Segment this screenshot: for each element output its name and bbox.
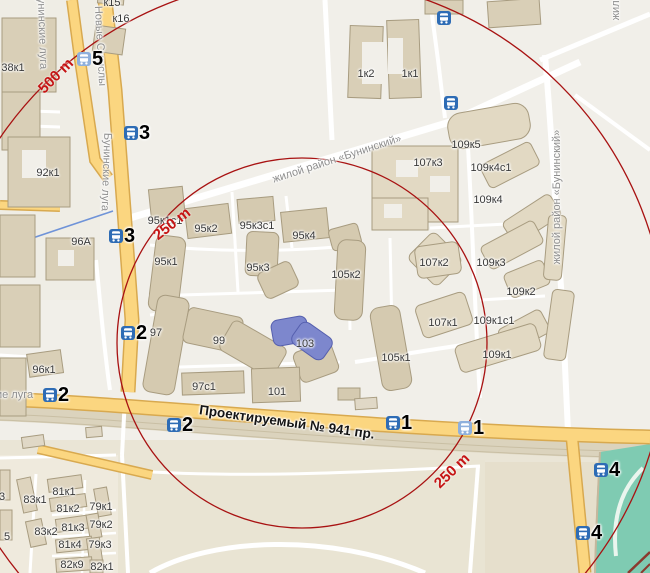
building-label: 103 xyxy=(296,338,314,350)
building[interactable] xyxy=(21,435,44,449)
bus-stop[interactable]: 5 xyxy=(77,52,103,66)
building[interactable] xyxy=(86,426,103,437)
bus-icon[interactable] xyxy=(386,416,400,430)
building-label: 109к2 xyxy=(506,286,535,298)
building-label: 107к2 xyxy=(419,257,448,269)
building-label: 79к3 xyxy=(88,539,111,551)
building-label: 81к4 xyxy=(58,539,81,551)
bus-stop[interactable]: 4 xyxy=(594,463,620,477)
bus-stop-number: 4 xyxy=(591,526,602,540)
bus-stop-number: 2 xyxy=(136,326,147,340)
street-label: Бунинские луга xyxy=(35,0,50,69)
bus-stop[interactable] xyxy=(444,96,459,110)
bus-stop[interactable]: 3 xyxy=(124,126,150,140)
bus-icon[interactable] xyxy=(576,526,590,540)
bus-icon[interactable] xyxy=(437,11,451,25)
bus-stop-number: 2 xyxy=(182,418,193,432)
building-label: 95к3 xyxy=(246,262,269,274)
bus-stop-number: 4 xyxy=(609,463,620,477)
building-label: 81к2 xyxy=(56,503,79,515)
bus-icon[interactable] xyxy=(124,126,138,140)
building-label: 81к3 xyxy=(61,522,84,534)
bus-icon[interactable] xyxy=(77,52,91,66)
building-label: 96А xyxy=(71,236,91,248)
bus-stop-number: 3 xyxy=(139,126,150,140)
bus-stop-number: 1 xyxy=(401,416,412,430)
building-label: 82к1 xyxy=(90,561,113,573)
bus-icon[interactable] xyxy=(594,463,608,477)
building-label: 79к1 xyxy=(89,501,112,513)
building-label: 109к4с1 xyxy=(471,162,512,174)
street-label: Бунинские луга xyxy=(0,389,33,401)
bus-stop[interactable]: 2 xyxy=(121,326,147,340)
bus-icon[interactable] xyxy=(43,388,57,402)
building-label: к15 xyxy=(103,0,120,9)
building-label: 97 xyxy=(150,327,162,339)
building-label: 95к1 xyxy=(154,256,177,268)
bus-stop-number: 5 xyxy=(92,52,103,66)
building-label: 83к1 xyxy=(23,494,46,506)
bus-stop-number: 3 xyxy=(124,229,135,243)
bus-stop[interactable]: 1 xyxy=(458,421,484,435)
building-label: 97с1 xyxy=(192,381,216,393)
bus-stop-number: 2 xyxy=(58,388,69,402)
map-canvas[interactable]: к15к161к21к138к192к196А96к195к1с195к295к… xyxy=(0,0,650,573)
building-label: 96к1 xyxy=(32,364,55,376)
building-label: 105к2 xyxy=(331,269,360,281)
bus-icon[interactable] xyxy=(458,421,472,435)
bus-icon[interactable] xyxy=(167,418,181,432)
bus-stop-number: 1 xyxy=(473,421,484,435)
bus-icon[interactable] xyxy=(109,229,123,243)
bus-icon[interactable] xyxy=(444,96,458,110)
building-label: 1к2 xyxy=(357,68,374,80)
building-label: 105к1 xyxy=(381,352,410,364)
bus-stop[interactable]: 1 xyxy=(386,416,412,430)
building-label: 79к2 xyxy=(89,519,112,531)
building-label: 101 xyxy=(268,386,286,398)
bus-stop[interactable]: 2 xyxy=(43,388,69,402)
building-label: 82к9 xyxy=(60,559,83,571)
building[interactable] xyxy=(0,215,35,277)
building-label: 99 xyxy=(213,335,225,347)
building-label: 109к1с1 xyxy=(474,315,515,327)
street-label: жилой район «Бунинский» xyxy=(551,130,563,265)
building-label: 92к1 xyxy=(36,167,59,179)
building-label: 109к3 xyxy=(476,257,505,269)
building-label: 107к1 xyxy=(428,317,457,329)
building-label: 81к1 xyxy=(52,486,75,498)
building-label: 109к4 xyxy=(473,194,502,206)
building-label: 38к1 xyxy=(1,62,24,74)
bus-stop[interactable]: 2 xyxy=(167,418,193,432)
building-label: 109к5 xyxy=(451,139,480,151)
bus-stop[interactable] xyxy=(437,11,452,25)
building-label: 95к4 xyxy=(292,230,315,242)
building-label: 5 xyxy=(4,531,10,543)
building-label: 109к1 xyxy=(482,349,511,361)
building[interactable] xyxy=(0,358,26,416)
bus-stop[interactable]: 4 xyxy=(576,526,602,540)
building-label: 1к1 xyxy=(401,68,418,80)
bus-icon[interactable] xyxy=(121,326,135,340)
building[interactable] xyxy=(0,285,40,347)
building-label: 95к3с1 xyxy=(240,220,275,232)
building-label: 3 xyxy=(0,491,5,503)
building-label: к16 xyxy=(112,13,129,25)
bus-stop[interactable]: 3 xyxy=(109,229,135,243)
building-label: 107к3 xyxy=(413,157,442,169)
building[interactable] xyxy=(487,0,541,28)
building[interactable] xyxy=(355,397,378,410)
minor-road xyxy=(0,355,30,357)
street-label: жилой район «Бунинский» xyxy=(610,0,622,20)
building-label: 83к2 xyxy=(34,526,57,538)
building-label: 95к2 xyxy=(194,223,217,235)
